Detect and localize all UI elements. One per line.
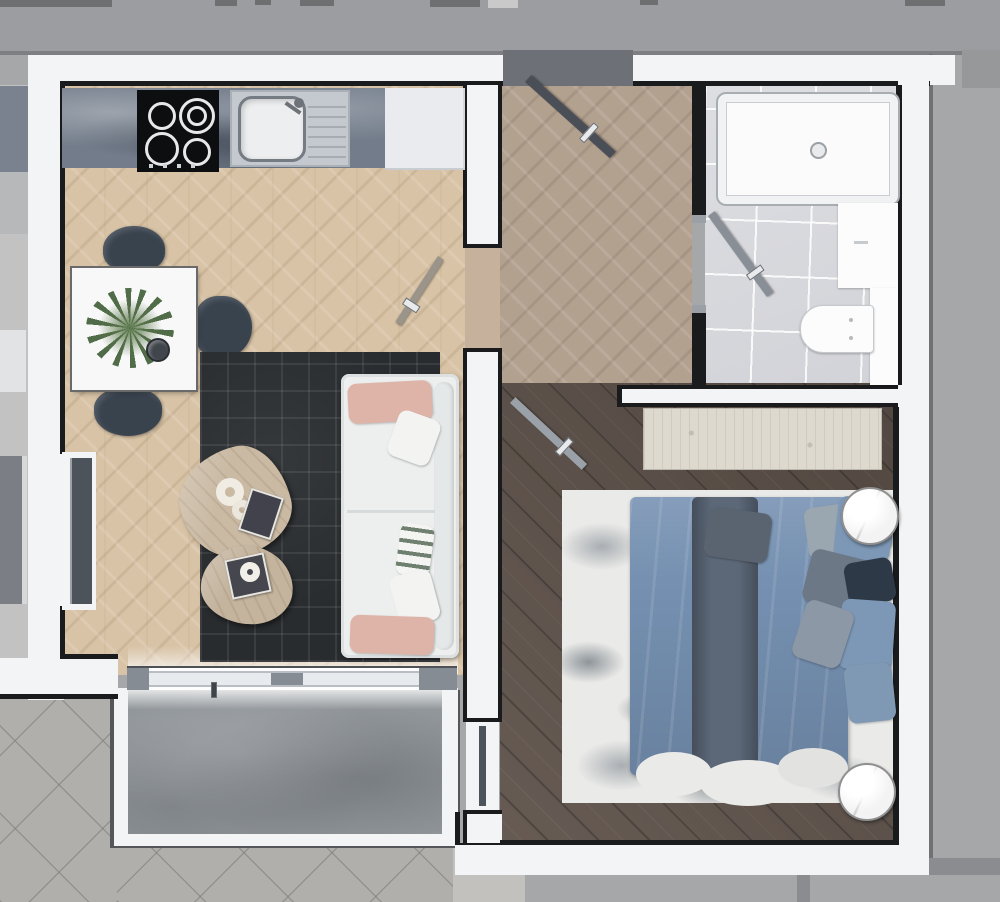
- wall-bottom-left: [0, 658, 118, 698]
- door-jamb: [617, 385, 622, 407]
- cup: [146, 338, 170, 362]
- neighbor-gray-block: [0, 172, 28, 234]
- exterior-right-corner-block: [962, 50, 1000, 88]
- wall-living-bedroom-west: [463, 348, 502, 722]
- bed-pillow-blue: [843, 662, 897, 725]
- toilet-button-icon: [849, 336, 853, 340]
- mug: [240, 562, 260, 582]
- top-edge-fragment: [430, 0, 480, 7]
- balcony-railing: [114, 832, 458, 846]
- paved-plaza: [117, 845, 459, 902]
- glass-door-frame: [419, 668, 457, 690]
- cooktop-controls-icon: [149, 164, 205, 168]
- dining-chair: [94, 388, 162, 436]
- top-edge-fragment: [0, 0, 112, 7]
- burner-icon: [148, 102, 176, 130]
- exterior-top-strip: [0, 0, 1000, 54]
- bathroom-vanity: [838, 203, 898, 288]
- bathroom-ledge: [870, 288, 898, 385]
- wall-bathroom-west-lower: [692, 313, 706, 385]
- burner-icon: [145, 132, 179, 166]
- burner-icon: [183, 138, 211, 166]
- glass-door-handle-icon: [211, 682, 217, 698]
- cooktop: [137, 90, 219, 172]
- wall-bedroom-north: [617, 385, 928, 407]
- drainboard-ridges: [308, 102, 346, 158]
- neighbor-white-block: [0, 330, 26, 392]
- kitchen-sink-unit: [230, 90, 350, 167]
- tub-drain-icon: [810, 142, 827, 159]
- bed-pillow-slate: [703, 506, 773, 564]
- wall-east: [898, 55, 929, 875]
- top-edge-fragment: [255, 0, 271, 5]
- door-jamb-gray: [692, 305, 706, 313]
- exterior-right-edge-line: [929, 54, 933, 875]
- door-jamb: [463, 244, 502, 248]
- paved-plaza: [0, 698, 118, 902]
- wall-edge: [0, 694, 118, 699]
- wall-bedroom-west-lower: [463, 814, 502, 845]
- wall-living-hall-upper: [463, 85, 502, 248]
- sofa-seam: [347, 510, 435, 513]
- wall-edge: [62, 81, 503, 86]
- balcony-floor: [128, 686, 442, 834]
- striped-pillow: [395, 522, 436, 578]
- door-jamb: [463, 348, 502, 352]
- living-door-threshold-floor: [465, 248, 500, 348]
- entrance-threshold: [503, 50, 633, 86]
- dining-chair: [194, 296, 252, 358]
- balcony-glass-door: [127, 666, 457, 690]
- round-side-table: [838, 763, 896, 821]
- wall-edge: [60, 654, 118, 659]
- wall-edge: [60, 606, 65, 660]
- dining-chair: [103, 226, 165, 272]
- neighbor-window-mirror: [0, 456, 22, 604]
- bedroom-window-glass: [479, 726, 486, 806]
- toilet-button-icon: [849, 318, 853, 322]
- top-edge-fragment: [905, 0, 945, 6]
- duvet-foot-fold: [636, 752, 712, 796]
- door-jamb-gray: [692, 215, 706, 223]
- wall-left: [28, 55, 64, 700]
- wall-edge: [633, 81, 930, 86]
- burner-icon: [187, 106, 207, 126]
- neighbor-window-frame-line: [22, 456, 27, 604]
- round-side-table: [841, 487, 899, 545]
- wall-bathroom-west-upper: [692, 85, 706, 215]
- top-edge-fragment: [640, 0, 658, 5]
- duvet-foot-fold: [778, 748, 848, 788]
- toilet: [800, 305, 874, 353]
- glass-door-frame: [271, 673, 303, 685]
- floorplan-canvas: [0, 0, 1000, 902]
- top-edge-fragment: [215, 0, 237, 6]
- top-edge-fragment: [488, 0, 518, 8]
- kitchen-cabinet: [385, 88, 465, 170]
- vanity-faucet-icon: [854, 241, 868, 244]
- top-edge-fragment: [300, 0, 334, 6]
- bedroom-console: [643, 408, 882, 470]
- living-window-glass: [70, 458, 92, 604]
- wall-edge: [500, 840, 898, 845]
- wall-bedroom-south: [455, 845, 929, 875]
- glass-door-frame: [127, 668, 149, 690]
- blush-pillow: [349, 615, 434, 656]
- bathtub: [716, 92, 900, 206]
- balcony-railing: [114, 688, 128, 846]
